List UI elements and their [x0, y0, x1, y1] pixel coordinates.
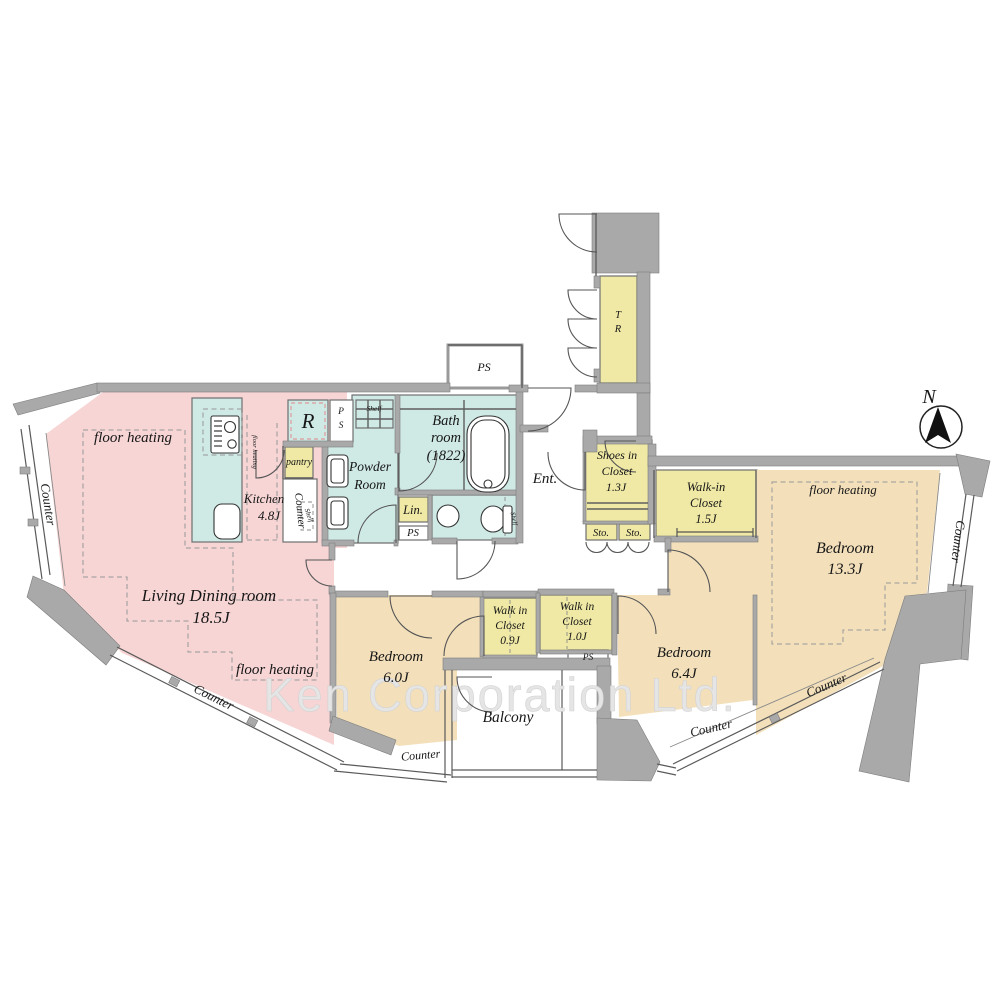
wall-trunk-stub-1: [594, 276, 600, 288]
window-band-balcony-left: [334, 764, 451, 782]
wall-trunk-stub-2: [594, 369, 600, 382]
wall-wic10-bottom: [540, 650, 612, 654]
storage-label-1: Sto.: [593, 528, 609, 539]
wall-trunk-bottom: [597, 383, 650, 393]
bedroom64-size-label: 6.4J: [671, 666, 698, 682]
entrance-label: Ent.: [532, 471, 558, 487]
powder-sink-2-bowl: [331, 501, 344, 525]
stove-burner-1: [225, 422, 236, 433]
wall-wic10-right: [612, 593, 617, 655]
balcony-rail: [452, 770, 597, 777]
wall-wic09-left: [480, 597, 484, 657]
bedroom64-label: Bedroom: [657, 645, 712, 661]
wall-top: [97, 383, 450, 392]
wall-bath-toilet: [398, 490, 518, 495]
wall-bedroom64-13: [753, 595, 757, 705]
ps-wic-label: PS: [582, 653, 594, 663]
wall-ent-door-post: [583, 430, 597, 452]
ps-vert-p: P: [337, 407, 344, 417]
refrigerator-label: R: [301, 409, 315, 433]
wall-r-row-bottom: [283, 441, 353, 447]
stove-burner-2: [228, 440, 236, 448]
wall-hall-south-1: [330, 591, 388, 597]
wall-living-hall-1: [329, 543, 335, 560]
wall-hall-south-3: [483, 591, 538, 597]
ps-vert-s: S: [339, 421, 344, 431]
bath-label-2: room: [431, 430, 461, 446]
window-stub-left-2: [28, 519, 38, 526]
bedroom13-size-label: 13.3J: [827, 561, 863, 578]
trunk-label-r: R: [614, 324, 622, 335]
powder-label-2: Room: [353, 477, 386, 492]
ps-linen-label: PS: [406, 528, 419, 539]
wall-bath-powder-1: [395, 395, 400, 453]
balcony-label: Balcony: [483, 709, 534, 726]
wall-toilet-bottom-1: [432, 538, 457, 544]
north-label: N: [921, 386, 937, 408]
floor-heating-label-bedroom: floor heating: [809, 482, 877, 497]
wall-corridor-1: [509, 385, 528, 392]
floor-heating-label-living-top: floor heating: [94, 430, 172, 446]
wall-trunk-right: [637, 272, 650, 393]
living-label: Living Dining room: [141, 586, 276, 605]
wall-shoes-bottom: [583, 521, 652, 524]
floor-plan-page: Ken Corporation Ltd.: [0, 0, 1000, 1000]
kitchen-size-label: 4.8J: [258, 508, 281, 523]
door-storage-bifold: [586, 542, 649, 553]
wic09-label-2: Closet: [495, 620, 525, 632]
door-corridor-top: [559, 214, 597, 252]
toilet-icon: [481, 506, 505, 532]
floor-heating-label-living-bottom: floor heating: [236, 662, 314, 678]
wic09-label-1: Walk in: [493, 605, 528, 617]
counter-strip-balcony-right: [657, 764, 676, 775]
bath-label-3: (1822): [427, 448, 466, 464]
living-size-label: 18.5J: [192, 608, 231, 627]
wall-bedroom-wing-top: [648, 456, 962, 466]
wall-toilet-left: [428, 495, 432, 540]
wall-toilet-bottom-2: [492, 538, 518, 544]
storage-label-2: Sto.: [626, 528, 642, 539]
wic09-size-label: 0.9J: [500, 635, 520, 647]
door-corridor: [528, 388, 571, 431]
toilet-basin-icon: [437, 505, 459, 527]
bedroom60-label: Bedroom: [369, 649, 424, 665]
wic15-label-1: Walk-in: [687, 480, 725, 494]
bathtub-inner: [471, 420, 505, 488]
wall-hall-south-2: [432, 591, 483, 597]
north-arrow-icon: [925, 407, 951, 443]
door-trunk-closet-2: [568, 319, 597, 348]
wic10-size-label: 1.0J: [567, 631, 587, 643]
ps-top-label: PS: [476, 360, 490, 374]
bedroom13-label: Bedroom: [816, 540, 874, 557]
wic15-label-2: Closet: [690, 496, 722, 510]
kitchen-sink-icon: [214, 504, 240, 539]
wic10-label-1: Walk in: [560, 601, 595, 613]
wic15-size-label: 1.5J: [695, 512, 718, 526]
shoes-label-1: Shoes in: [597, 448, 637, 462]
bathtub-drain: [484, 480, 492, 488]
north-compass-icon: N: [920, 386, 962, 448]
kitchen-label: Kitchen: [243, 491, 284, 506]
bedroom60-size-label: 6.0J: [383, 670, 410, 686]
window-stub-left-1: [20, 467, 30, 474]
wall-powder-bottom-1: [322, 540, 354, 546]
shoes-label-2: Closet: [602, 464, 633, 478]
wic10-label-2: Closet: [562, 616, 592, 628]
wall-wic09-wic10: [536, 593, 540, 653]
pantry-label: pantry: [285, 457, 313, 468]
wall-corridor-2: [575, 385, 599, 392]
wall-balcony-right-corner: [597, 718, 660, 781]
floor-heating-label-kitchen: floor heating: [251, 435, 258, 470]
powder-sink-1-bowl: [331, 459, 344, 483]
powder-label-1: Powder: [348, 459, 392, 474]
bath-label-1: Bath: [432, 413, 459, 429]
shelf-label-powder: Shelf: [367, 404, 383, 413]
counter-label-balcony-left: Counter: [400, 746, 441, 763]
door-trunk-closet-3: [568, 348, 597, 377]
door-toilet: [457, 541, 495, 579]
wall-corner-top-right: [956, 454, 990, 497]
wall-hall-south-4: [538, 589, 614, 595]
building-core-block: [592, 213, 659, 273]
linen-label: Lin.: [402, 503, 423, 517]
floor-plan: Ken Corporation Ltd.: [0, 0, 1000, 1000]
shoes-size-label: 1.3J: [606, 480, 627, 494]
door-trunk-closet-1: [568, 290, 597, 319]
